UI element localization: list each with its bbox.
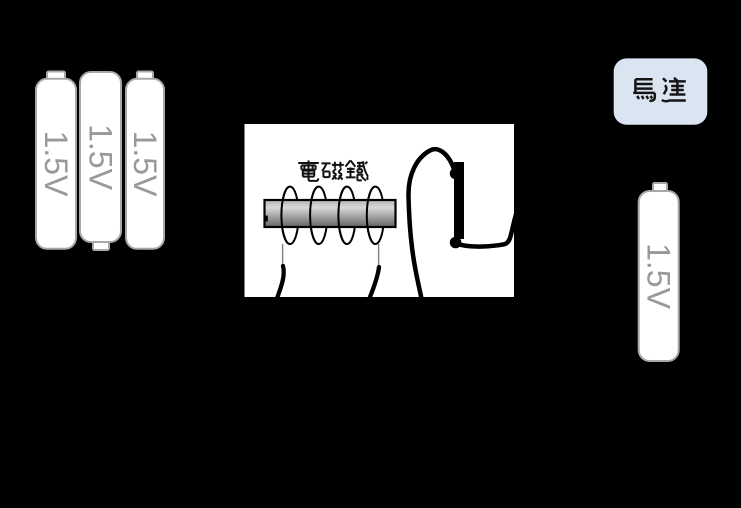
svg-text:1.5V: 1.5V	[83, 124, 119, 190]
svg-text:1.5V: 1.5V	[38, 131, 74, 197]
svg-text:1.5V: 1.5V	[641, 243, 677, 309]
svg-text:1.5V: 1.5V	[127, 131, 163, 197]
